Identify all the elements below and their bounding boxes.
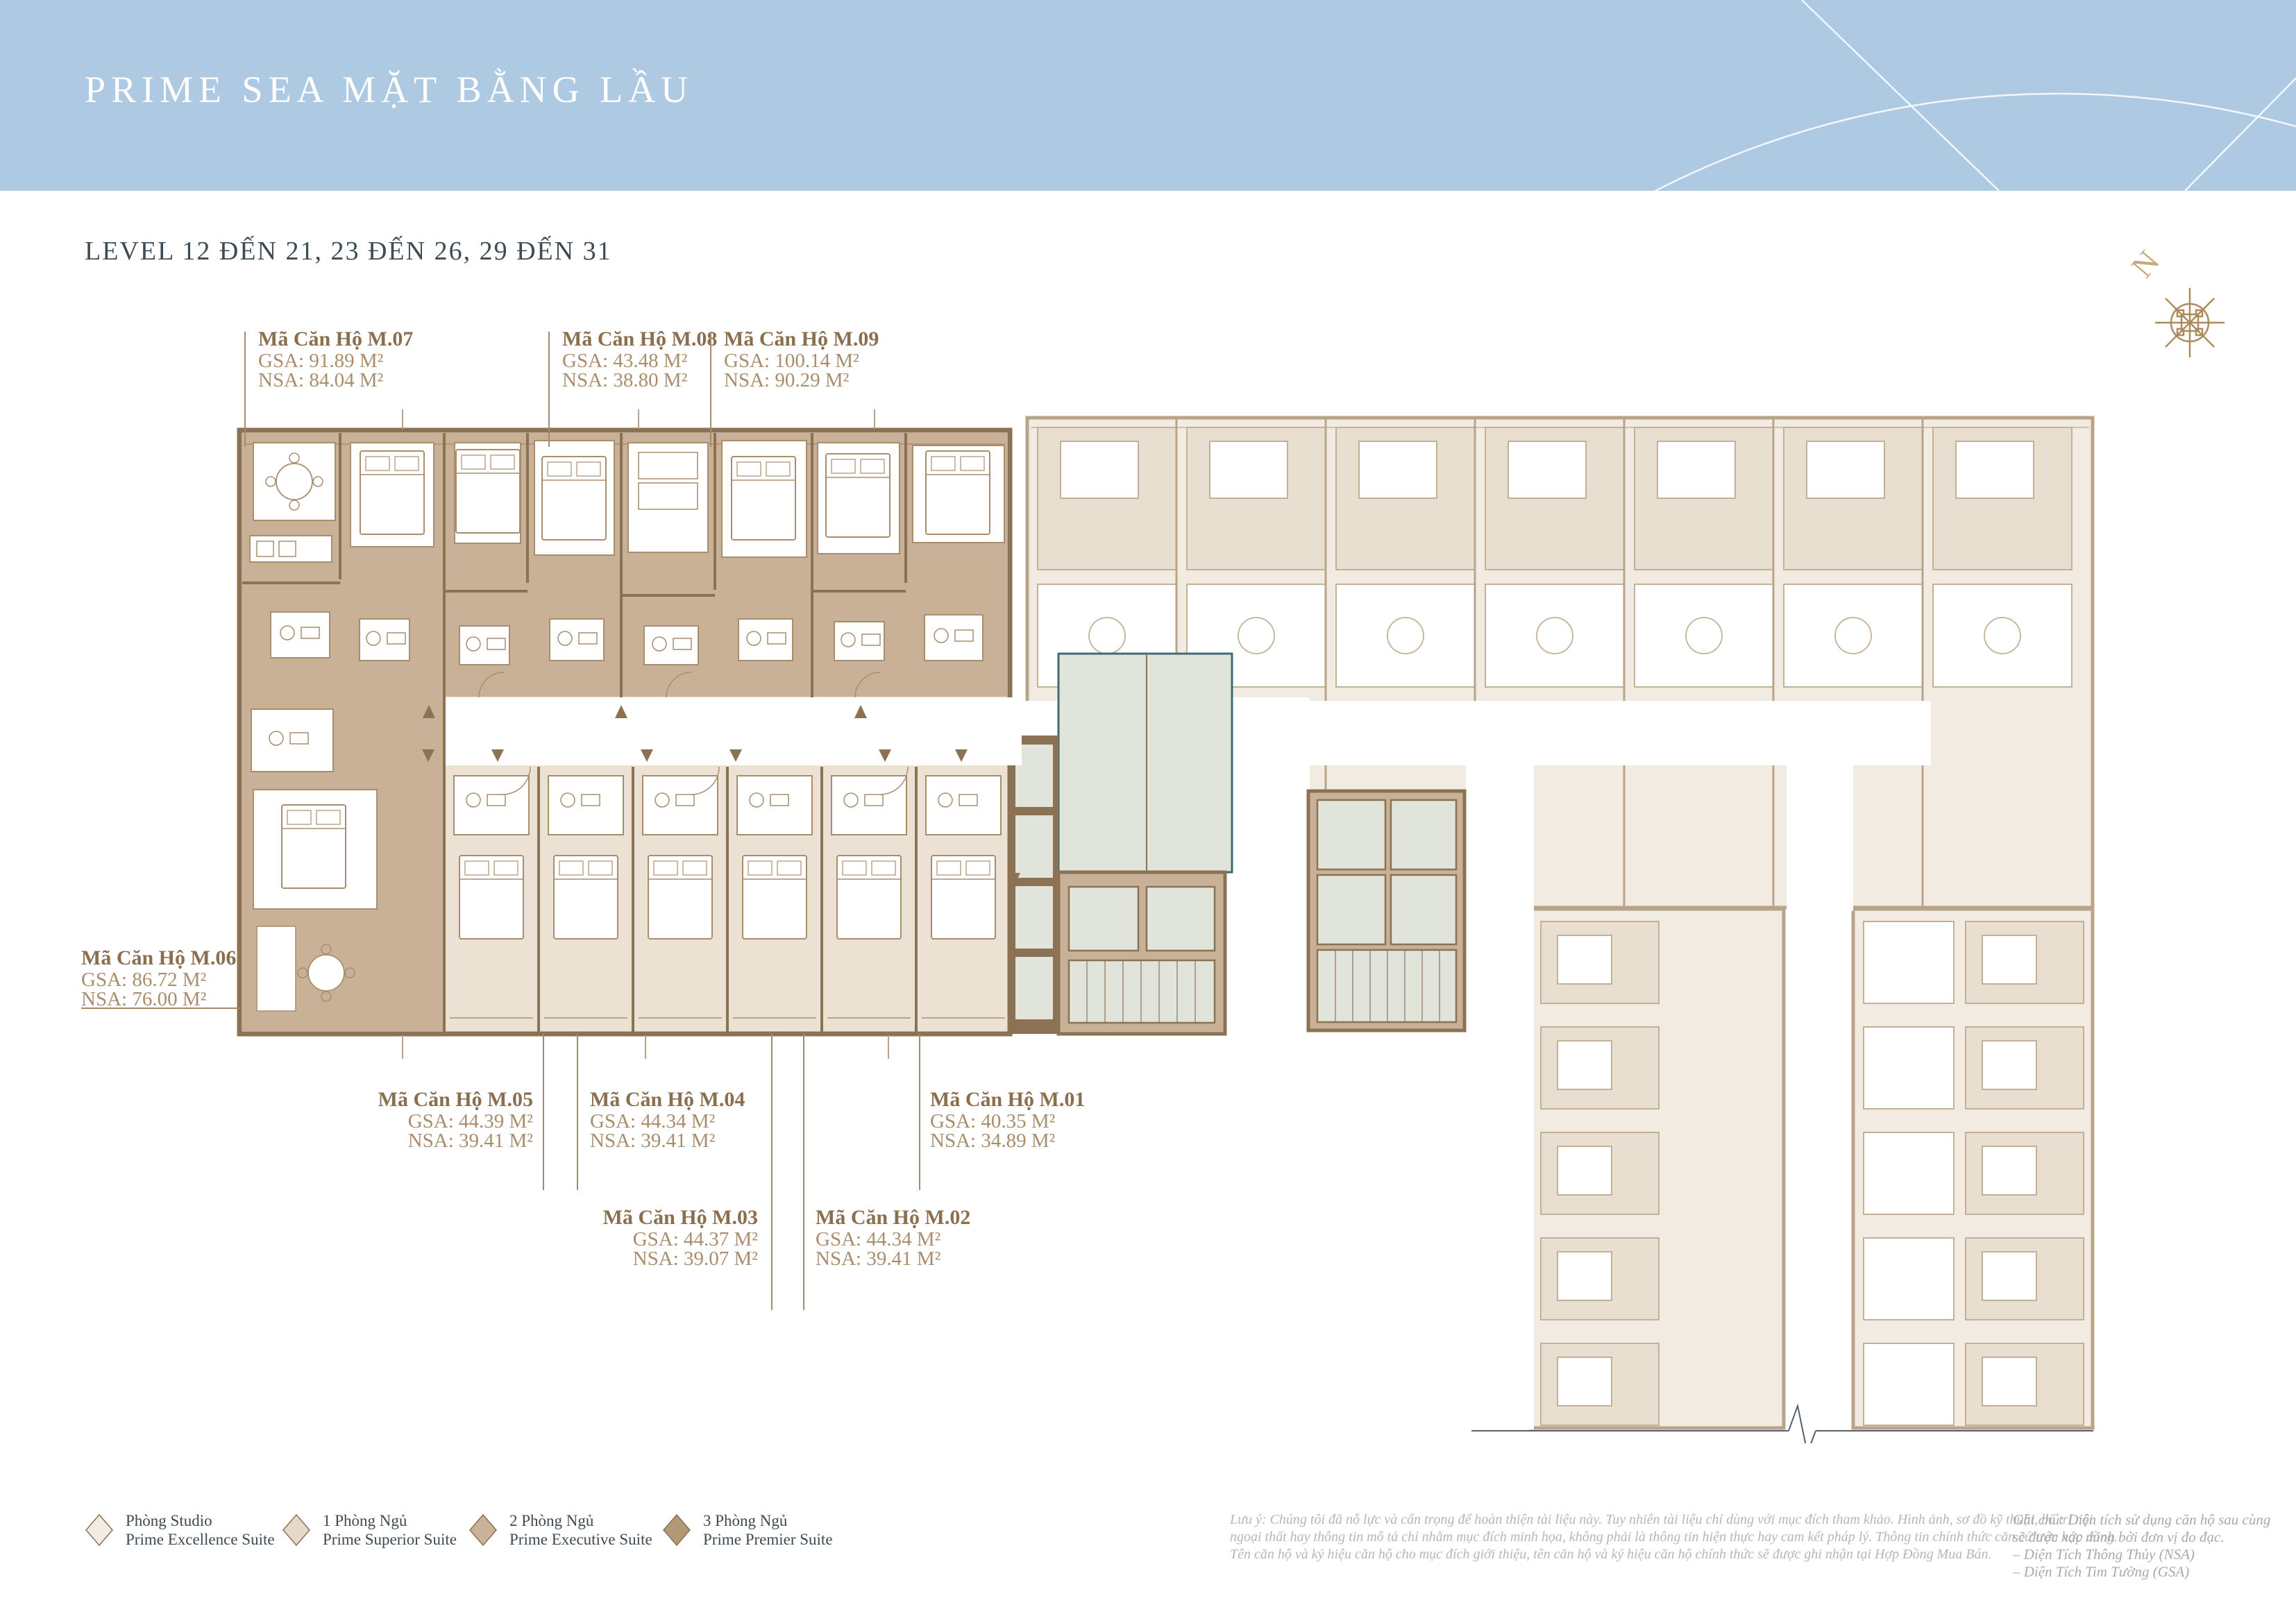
- leader-line-m07: [244, 332, 246, 447]
- leader-line-m03: [771, 1034, 773, 1310]
- disclaimer-line: Lưu ý: Chúng tôi đã nỗ lực và cẩn trọng …: [1230, 1511, 2014, 1529]
- legend-item-studio: Phòng Studio Prime Excellence Suite: [85, 1511, 275, 1549]
- unit-gsa: GSA: 44.34 M²: [590, 1112, 798, 1131]
- legend-item-1br: 1 Phòng Ngủ Prime Superior Suite: [282, 1511, 457, 1549]
- unit-label-m07: Mã Căn Hộ M.07 GSA: 91.89 M² NSA: 84.04 …: [258, 329, 466, 390]
- legend-item-3br: 3 Phòng Ngủ Prime Premier Suite: [663, 1511, 833, 1549]
- unit-label-m01: Mã Căn Hộ M.01 GSA: 40.35 M² NSA: 34.89 …: [930, 1089, 1138, 1150]
- legend-type: Phòng Studio: [126, 1511, 275, 1530]
- legend-diamond-icon: [663, 1514, 691, 1546]
- unit-label-m06: Mã Căn Hộ M.06 GSA: 86.72 M² NSA: 76.00 …: [81, 948, 289, 1009]
- compass-wheel: [2155, 288, 2225, 357]
- unit-gsa: GSA: 44.34 M²: [816, 1230, 1024, 1249]
- unit-nsa: NSA: 76.00 M²: [81, 989, 289, 1009]
- legend-diamond-icon: [469, 1514, 497, 1546]
- page-title: PRIME SEA MẶT BẰNG LẦU: [85, 68, 693, 111]
- unit-nsa: NSA: 90.29 M²: [724, 371, 932, 390]
- disclaimer-text: Lưu ý: Chúng tôi đã nỗ lực và cẩn trọng …: [1230, 1511, 2014, 1563]
- elevator-core-b: [1308, 791, 1464, 1030]
- note-line: – Diện Tích Tim Tường (GSA): [2013, 1563, 2270, 1581]
- note-line: sẽ được xác minh bởi đơn vị đo đạc.: [2013, 1529, 2270, 1546]
- legend-item-2br: 2 Phòng Ngủ Prime Executive Suite: [469, 1511, 652, 1549]
- unit-nsa: NSA: 84.04 M²: [258, 371, 466, 390]
- legend-suite: Prime Superior Suite: [323, 1530, 457, 1549]
- legend-type: 2 Phòng Ngủ: [509, 1511, 652, 1530]
- leader-line-m02: [803, 1034, 804, 1310]
- unit-nsa: NSA: 34.89 M²: [930, 1131, 1138, 1150]
- unit-code: Mã Căn Hộ M.02: [816, 1207, 1024, 1228]
- legend-suite: Prime Executive Suite: [509, 1530, 652, 1549]
- leader-line-m05: [543, 1034, 544, 1190]
- floor-plan: [236, 409, 2096, 1443]
- legend-diamond-icon: [85, 1514, 113, 1546]
- unit-code: Mã Căn Hộ M.09: [724, 329, 932, 350]
- note-line: – Diện Tích Thông Thủy (NSA): [2013, 1546, 2270, 1563]
- leader-line-m04: [577, 1034, 578, 1190]
- unit-code: Mã Căn Hộ M.03: [550, 1207, 758, 1228]
- unit-label-m02: Mã Căn Hộ M.02 GSA: 44.34 M² NSA: 39.41 …: [816, 1207, 1024, 1268]
- floorplan-page: { "header": { "title": "PRIME SEA MẶT BẰ…: [0, 0, 2296, 1623]
- legend-suite: Prime Premier Suite: [703, 1530, 833, 1549]
- unit-label-m09: Mã Căn Hộ M.09 GSA: 100.14 M² NSA: 90.29…: [724, 329, 932, 390]
- unit-gsa: GSA: 100.14 M²: [724, 351, 932, 371]
- disclaimer-line: Tên căn hộ và ký hiệu căn hộ cho mục đíc…: [1230, 1546, 2014, 1563]
- legend-type: 1 Phòng Ngủ: [323, 1511, 457, 1530]
- compass-north-label: N: [2125, 244, 2166, 284]
- unit-nsa: NSA: 39.41 M²: [590, 1131, 798, 1150]
- level-title: LEVEL 12 ĐẾN 21, 23 ĐẾN 26, 29 ĐẾN 31: [85, 236, 612, 266]
- unit-nsa: NSA: 39.07 M²: [550, 1249, 758, 1268]
- unit-code: Mã Căn Hộ M.01: [930, 1089, 1138, 1110]
- unit-gsa: GSA: 86.72 M²: [81, 970, 289, 989]
- unit-gsa: GSA: 91.89 M²: [258, 351, 466, 371]
- legend-diamond-icon: [282, 1514, 310, 1546]
- unit-code: Mã Căn Hộ M.06: [81, 948, 289, 969]
- legend-suite: Prime Excellence Suite: [126, 1530, 275, 1549]
- leader-line-m09: [710, 332, 711, 447]
- unit-nsa: NSA: 39.41 M²: [325, 1131, 533, 1150]
- left-wing-highlighted: [239, 409, 1022, 1059]
- unit-gsa: GSA: 44.39 M²: [325, 1112, 533, 1131]
- area-notes: Ghi chú: Diện tích sử dụng căn hộ sau cù…: [2013, 1511, 2270, 1581]
- unit-code: Mã Căn Hộ M.05: [325, 1089, 533, 1110]
- legend-type: 3 Phòng Ngủ: [703, 1511, 833, 1530]
- leader-line-m01: [919, 1034, 920, 1190]
- note-line: Ghi chú: Diện tích sử dụng căn hộ sau cù…: [2013, 1511, 2270, 1529]
- unit-label-m03: Mã Căn Hộ M.03 GSA: 44.37 M² NSA: 39.07 …: [550, 1207, 758, 1268]
- unit-gsa: GSA: 40.35 M²: [930, 1112, 1138, 1131]
- unit-code: Mã Căn Hộ M.07: [258, 329, 466, 350]
- header-band: PRIME SEA MẶT BẰNG LẦU: [0, 0, 2296, 191]
- disclaimer-line: ngoại thất hay thông tin mô tả chỉ nhằm …: [1230, 1529, 2014, 1546]
- unit-nsa: NSA: 39.41 M²: [816, 1249, 1024, 1268]
- unit-label-m04: Mã Căn Hộ M.04 GSA: 44.34 M² NSA: 39.41 …: [590, 1089, 798, 1150]
- compass-icon: N: [2117, 239, 2270, 385]
- unit-code: Mã Căn Hộ M.04: [590, 1089, 798, 1110]
- leader-line-m06: [81, 1008, 239, 1009]
- leader-line-m08: [548, 332, 550, 447]
- unit-label-m05: Mã Căn Hộ M.05 GSA: 44.39 M² NSA: 39.41 …: [325, 1089, 533, 1150]
- unit-gsa: GSA: 44.37 M²: [550, 1230, 758, 1249]
